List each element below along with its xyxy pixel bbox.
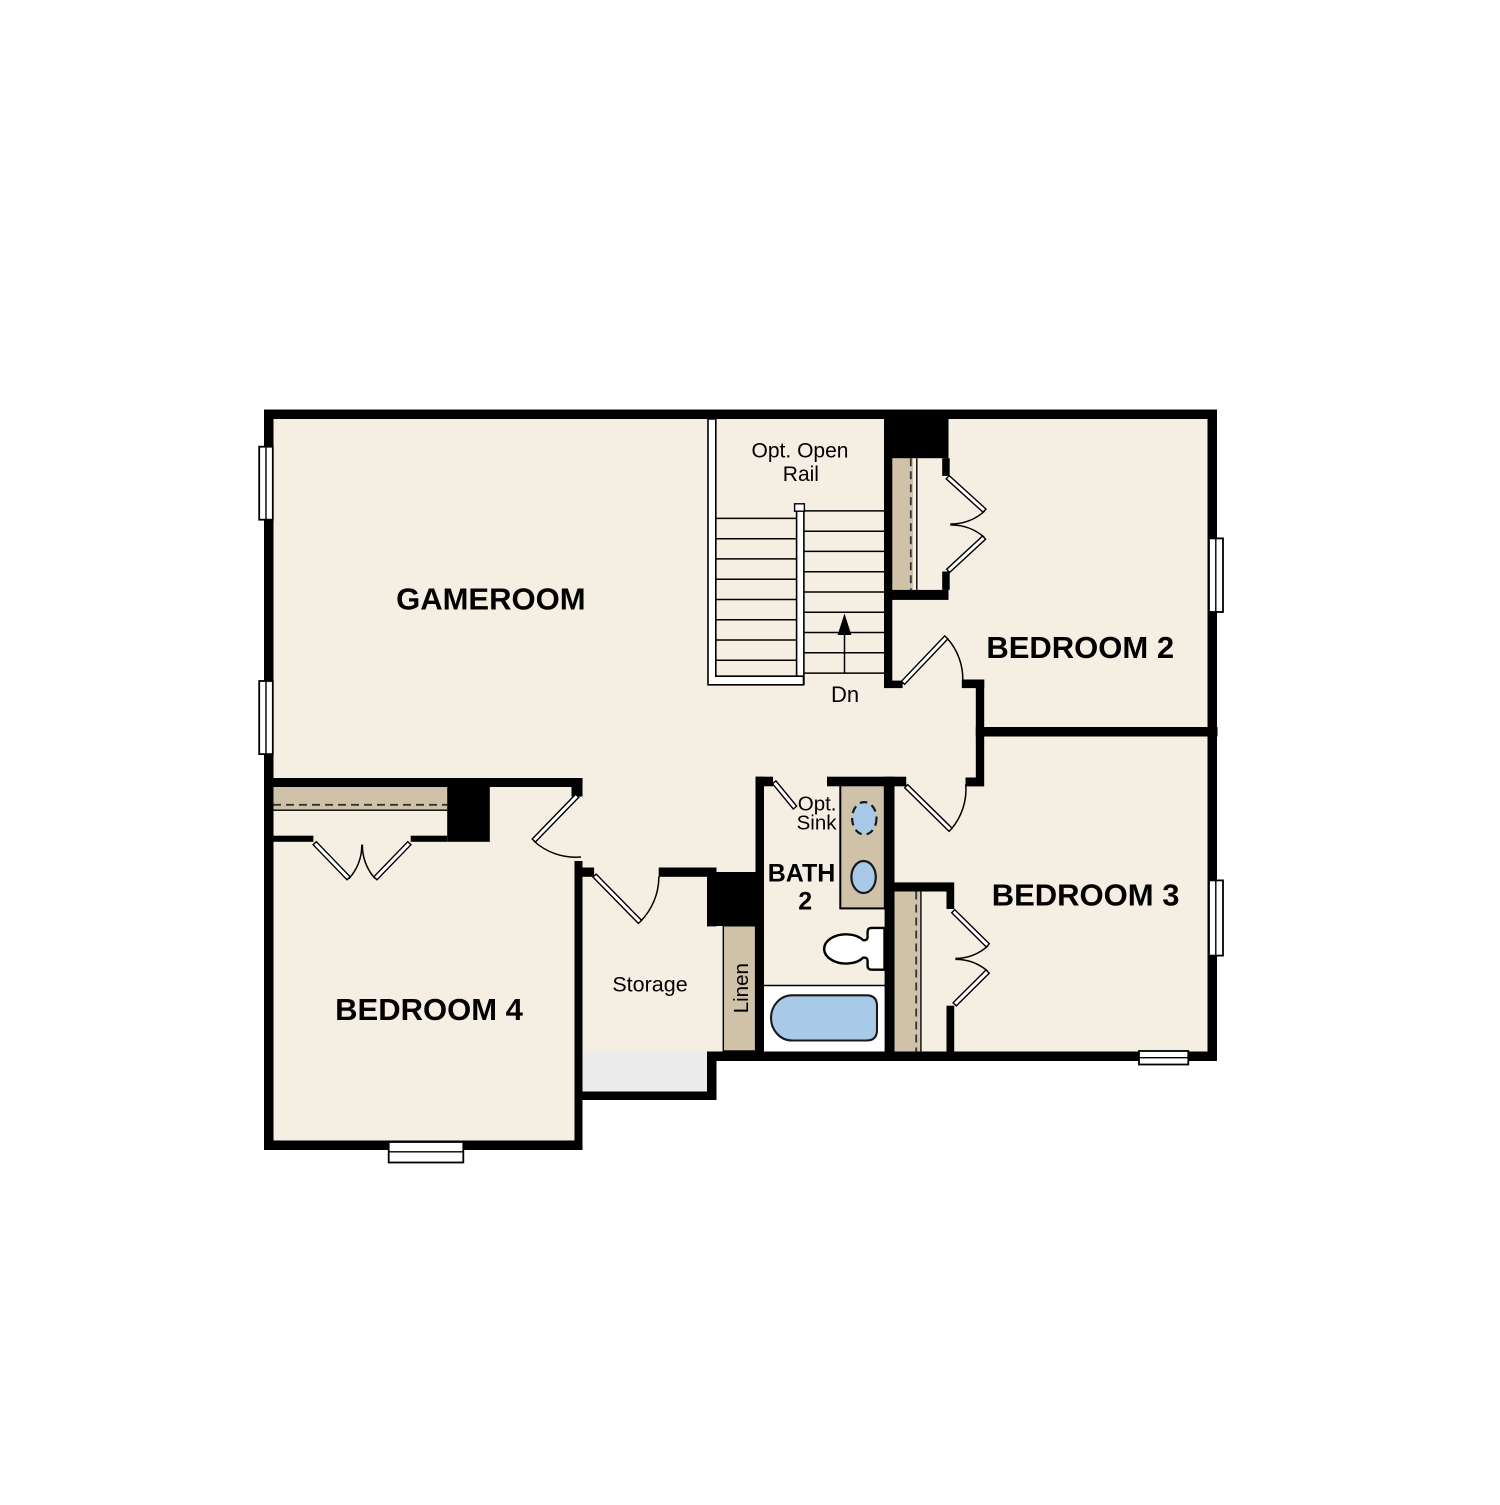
svg-text:BEDROOM 4: BEDROOM 4	[335, 992, 524, 1027]
svg-text:GAMEROOM: GAMEROOM	[396, 581, 585, 616]
svg-text:2: 2	[798, 888, 812, 916]
svg-text:BEDROOM 3: BEDROOM 3	[992, 878, 1180, 913]
svg-text:Storage: Storage	[612, 973, 687, 997]
svg-text:Opt. Open: Opt. Open	[752, 440, 849, 463]
svg-text:Linen: Linen	[730, 963, 753, 1013]
svg-text:Sink: Sink	[797, 812, 838, 835]
svg-text:BATH: BATH	[768, 860, 836, 888]
svg-text:Dn: Dn	[831, 682, 859, 707]
svg-text:Rail: Rail	[783, 463, 819, 486]
svg-text:BEDROOM 2: BEDROOM 2	[986, 630, 1174, 665]
